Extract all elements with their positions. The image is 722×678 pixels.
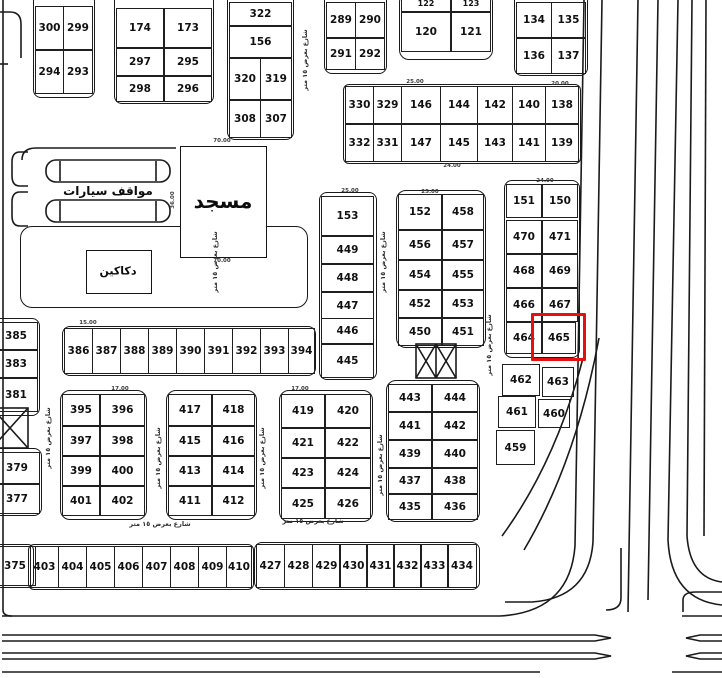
dimension-label: 25.00 — [421, 189, 438, 195]
plot-number: 143 — [484, 137, 506, 149]
plot-138: 138 — [545, 86, 579, 124]
plot-143: 143 — [477, 124, 513, 162]
plot-number: 468 — [513, 265, 535, 277]
plot-number: 295 — [177, 56, 199, 68]
west-road — [3, 0, 12, 616]
plot-number: 397 — [70, 435, 92, 447]
plot-462: 462 — [502, 364, 540, 396]
plot-number: 406 — [118, 561, 140, 573]
plot-136: 136 — [516, 38, 552, 74]
plot-294: 294 — [35, 50, 64, 94]
plot-152: 152 — [398, 194, 442, 230]
plot-419: 419 — [281, 394, 325, 428]
plot-number: 173 — [177, 22, 199, 34]
plot-number: 409 — [202, 561, 224, 573]
plot-397: 397 — [62, 426, 100, 456]
plot-number: 430 — [343, 560, 365, 572]
highway-line — [668, 0, 678, 540]
plot-number: 297 — [129, 56, 151, 68]
plot-135: 135 — [551, 2, 586, 38]
plot-number: 471 — [549, 231, 571, 243]
intersection-arc — [500, 546, 575, 616]
plot-173: 173 — [164, 8, 212, 48]
plot-457: 457 — [442, 230, 484, 260]
plot-number: 392 — [236, 345, 258, 357]
plot-416: 416 — [212, 426, 255, 456]
plot-449: 449 — [321, 236, 374, 264]
plot-430: 430 — [339, 544, 368, 588]
plot-number: 437 — [399, 475, 421, 487]
plot-331: 331 — [373, 124, 402, 162]
street-label: شارع بعرض ١٥ متر — [376, 434, 384, 495]
plot-number: 452 — [409, 298, 431, 310]
plot-number: 399 — [70, 465, 92, 477]
plot-289: 289 — [326, 2, 356, 38]
plot-403: 403 — [30, 546, 59, 588]
parking-row — [46, 160, 170, 182]
plot-436: 436 — [432, 494, 478, 520]
plot-number: 298 — [129, 83, 151, 95]
plot-number: 140 — [518, 99, 540, 111]
plot-number: 396 — [112, 404, 134, 416]
plot-number: 150 — [549, 195, 571, 207]
plot-number: 450 — [409, 326, 431, 338]
plot-number: 449 — [337, 244, 359, 256]
plot-134: 134 — [516, 2, 552, 38]
plot-420: 420 — [325, 394, 371, 428]
plot-293: 293 — [63, 50, 93, 94]
plot-308: 308 — [229, 100, 261, 138]
plot-431: 431 — [366, 544, 395, 588]
plot-468: 468 — [506, 254, 542, 288]
plot-424: 424 — [325, 458, 371, 488]
plot-number: 290 — [359, 14, 381, 26]
plot-174: 174 — [116, 8, 164, 48]
utility-block-hatched — [416, 344, 456, 378]
plot-number: 403 — [34, 561, 56, 573]
plot-number: 139 — [551, 137, 573, 149]
plot-number: 408 — [174, 561, 196, 573]
plot-433: 433 — [420, 544, 449, 588]
plot-number: 401 — [70, 495, 92, 507]
parking-row — [46, 200, 170, 222]
plot-437: 437 — [388, 468, 432, 494]
plot-number: 174 — [129, 22, 151, 34]
plot-392: 392 — [232, 328, 261, 374]
plot-number: 424 — [337, 467, 359, 479]
plot-number: 320 — [234, 73, 256, 85]
plot-156: 156 — [229, 26, 292, 58]
plot-391: 391 — [204, 328, 233, 374]
plot-387: 387 — [92, 328, 121, 374]
plot-number: 381 — [5, 389, 27, 401]
plot-153: 153 — [321, 196, 374, 236]
plot-number: 446 — [337, 325, 359, 337]
plot-number: 432 — [397, 560, 419, 572]
plot-443: 443 — [388, 384, 432, 412]
plot-290: 290 — [355, 2, 385, 38]
label-car-parking: مواقف سيارات — [63, 184, 153, 198]
plot-291: 291 — [326, 38, 356, 70]
plot-137: 137 — [551, 38, 586, 74]
plot-332: 332 — [345, 124, 374, 162]
plot-448: 448 — [321, 264, 374, 292]
plot-number: 458 — [452, 206, 474, 218]
plot-number: 463 — [547, 376, 569, 388]
street-label: شارع بعرض ١٥ متر — [129, 520, 190, 528]
plot-144: 144 — [440, 86, 478, 124]
plot-number: 385 — [5, 330, 27, 342]
plot-number: 138 — [551, 99, 573, 111]
plot-number: 427 — [260, 560, 282, 572]
dimension-label: 17.00 — [291, 386, 308, 392]
dimension-label: 70.00 — [213, 258, 230, 264]
plot-414: 414 — [212, 456, 255, 486]
plot-number: 137 — [558, 50, 580, 62]
plot-440: 440 — [432, 440, 478, 468]
plot-432: 432 — [393, 544, 422, 588]
street-label: شارع بعرض ١٥ متر — [258, 427, 266, 488]
plot-393: 393 — [260, 328, 289, 374]
plot-number: 293 — [67, 66, 89, 78]
plot-number: 141 — [518, 137, 540, 149]
intersection-arc — [505, 542, 593, 602]
plot-number: 438 — [444, 475, 466, 487]
plot-120: 120 — [401, 12, 451, 52]
plot-410: 410 — [226, 546, 252, 588]
plot-number: 429 — [316, 560, 338, 572]
plot-146: 146 — [401, 86, 441, 124]
south-median — [686, 635, 722, 641]
plot-number: 433 — [424, 560, 446, 572]
plot-number: 394 — [291, 345, 313, 357]
plot-385: 385 — [0, 322, 38, 350]
plot-428: 428 — [284, 544, 313, 588]
plot-number: 421 — [292, 437, 314, 449]
plot-number: 426 — [337, 498, 359, 510]
plot-number: 300 — [39, 22, 61, 34]
plot-330: 330 — [345, 86, 374, 124]
plot-number: 402 — [112, 495, 134, 507]
street-label: شارع بعرض ١٥ متر — [154, 427, 162, 488]
plot-number: 135 — [558, 14, 580, 26]
plot-number: 454 — [409, 269, 431, 281]
highlight-plot-465 — [531, 313, 586, 361]
plot-number: 428 — [288, 560, 310, 572]
plot-number: 144 — [448, 99, 470, 111]
plot-number: 156 — [250, 36, 272, 48]
plot-number: 134 — [523, 14, 545, 26]
plot-number: 153 — [337, 210, 359, 222]
plot-number: 147 — [410, 137, 432, 149]
plot-307: 307 — [260, 100, 292, 138]
plot-454: 454 — [398, 260, 442, 290]
dimension-label: 24.00 — [536, 178, 553, 184]
dimension-label: 17.00 — [111, 386, 128, 392]
plot-435: 435 — [388, 494, 432, 520]
plot-number: 469 — [549, 265, 571, 277]
plot-460: 460 — [538, 399, 570, 428]
plot-number: 435 — [399, 501, 421, 513]
plot-298: 298 — [116, 76, 164, 102]
highway-line — [704, 0, 706, 536]
plot-number: 442 — [444, 420, 466, 432]
plot-number: 455 — [452, 269, 474, 281]
plot-number: 436 — [444, 501, 466, 513]
plot-426: 426 — [325, 488, 371, 519]
plot-299: 299 — [63, 6, 93, 50]
plot-150: 150 — [542, 184, 578, 218]
plot-number: 299 — [67, 22, 89, 34]
plot-number: 383 — [5, 358, 27, 370]
plot-444: 444 — [432, 384, 478, 412]
plot-number: 390 — [180, 345, 202, 357]
intersection-corner — [683, 592, 722, 612]
plot-386: 386 — [64, 328, 93, 374]
plot-297: 297 — [116, 48, 164, 76]
dimension-label: 36.00 — [170, 191, 176, 208]
plot-number: 121 — [460, 26, 482, 38]
plot-408: 408 — [170, 546, 199, 588]
street-label: شارع بعرض ١٥ متر — [282, 517, 343, 525]
plot-number: 444 — [444, 392, 466, 404]
plot-400: 400 — [100, 456, 145, 486]
plot-421: 421 — [281, 428, 325, 458]
plot-442: 442 — [432, 412, 478, 440]
dimension-label: 25.00 — [341, 188, 358, 194]
plot-439: 439 — [388, 440, 432, 468]
label-shops: دكاكين — [100, 265, 137, 278]
plot-number: 322 — [250, 8, 272, 20]
plot-number: 386 — [68, 345, 90, 357]
plot-121: 121 — [451, 12, 491, 52]
dimension-label: 25.00 — [406, 79, 423, 85]
plot-388: 388 — [120, 328, 149, 374]
plot-number: 294 — [39, 66, 61, 78]
plot-471: 471 — [542, 220, 578, 254]
highway-line — [628, 0, 638, 612]
plot-number: 389 — [152, 345, 174, 357]
plot-422: 422 — [325, 428, 371, 458]
plot-404: 404 — [58, 546, 87, 588]
plot-number: 440 — [444, 448, 466, 460]
plot-145: 145 — [440, 124, 478, 162]
plot-395: 395 — [62, 394, 100, 426]
plot-141: 141 — [512, 124, 546, 162]
plot-number: 136 — [523, 50, 545, 62]
plot-number: 434 — [451, 560, 473, 572]
plot-number: 419 — [292, 405, 314, 417]
plot-455: 455 — [442, 260, 484, 290]
plot-number: 439 — [399, 448, 421, 460]
plot-number: 388 — [124, 345, 146, 357]
plot-number: 391 — [208, 345, 230, 357]
plot-446: 446 — [321, 318, 374, 344]
plot-390: 390 — [176, 328, 205, 374]
south-median — [2, 653, 611, 659]
plot-445: 445 — [321, 344, 374, 378]
plot-number: 291 — [330, 48, 352, 60]
parking-end-cap — [12, 152, 28, 186]
plot-number: 146 — [410, 99, 432, 111]
plot-number: 122 — [418, 0, 435, 8]
plot-405: 405 — [86, 546, 115, 588]
plot-number: 423 — [292, 467, 314, 479]
plot-number: 289 — [330, 14, 352, 26]
plot-number: 416 — [223, 435, 245, 447]
highway-line — [648, 0, 658, 600]
plot-381: 381 — [0, 378, 38, 412]
plot-number: 145 — [448, 137, 470, 149]
plot-438: 438 — [432, 468, 478, 494]
plot-number: 308 — [234, 113, 256, 125]
plot-number: 418 — [223, 404, 245, 416]
plot-319: 319 — [260, 58, 292, 100]
plot-320: 320 — [229, 58, 261, 100]
plot-407: 407 — [142, 546, 171, 588]
plot-417: 417 — [168, 394, 212, 426]
plot-number: 461 — [506, 406, 528, 418]
plot-number: 443 — [399, 392, 421, 404]
plot-number: 462 — [510, 374, 532, 386]
plot-number: 329 — [377, 99, 399, 111]
plot-number: 415 — [179, 435, 201, 447]
plot-377: 377 — [0, 484, 40, 514]
plot-399: 399 — [62, 456, 100, 486]
plot-number: 400 — [112, 465, 134, 477]
street-label: شارع بعرض ١٥ متر — [379, 231, 387, 292]
plot-number: 319 — [265, 73, 287, 85]
plot-number: 447 — [337, 300, 359, 312]
plot-number: 412 — [223, 495, 245, 507]
plot-number: 445 — [337, 355, 359, 367]
plot-number: 407 — [146, 561, 168, 573]
plot-398: 398 — [100, 426, 145, 456]
plot-142: 142 — [477, 86, 513, 124]
plot-number: 387 — [96, 345, 118, 357]
plot-415: 415 — [168, 426, 212, 456]
plot-296: 296 — [164, 76, 212, 102]
plot-409: 409 — [198, 546, 227, 588]
street-label: شارع بعرض ١٥ متر — [301, 29, 309, 90]
dimension-label: 70.00 — [213, 138, 230, 144]
street-label: شارع بعرض ١٥ متر — [44, 407, 52, 468]
plot-number: 422 — [337, 437, 359, 449]
plot-458: 458 — [442, 194, 484, 230]
dimension-label: 20.00 — [551, 81, 568, 87]
plot-396: 396 — [100, 394, 145, 426]
plot-139: 139 — [545, 124, 579, 162]
plot-number: 375 — [4, 560, 26, 572]
highway-line — [593, 0, 602, 542]
plot-number: 404 — [62, 561, 84, 573]
plot-402: 402 — [100, 486, 145, 516]
plot-number: 379 — [6, 462, 28, 474]
plot-number: 448 — [337, 272, 359, 284]
plot-number: 292 — [359, 48, 381, 60]
plot-379: 379 — [0, 452, 40, 484]
plot-122: 122 — [401, 0, 451, 12]
plot-number: 120 — [415, 26, 437, 38]
plot-number: 453 — [452, 298, 474, 310]
plot-389: 389 — [148, 328, 177, 374]
plot-number: 330 — [349, 99, 371, 111]
plot-number: 411 — [179, 495, 201, 507]
plot-451: 451 — [442, 318, 484, 346]
plot-number: 332 — [349, 137, 371, 149]
parking-area-edge — [22, 148, 176, 160]
intersection-arc — [668, 540, 722, 605]
plot-number: 410 — [228, 561, 250, 573]
plot-447: 447 — [321, 292, 374, 319]
plot-469: 469 — [542, 254, 578, 288]
plot-number: 460 — [543, 408, 565, 420]
plot-number: 377 — [6, 493, 28, 505]
plot-295: 295 — [164, 48, 212, 76]
intersection-arc — [687, 536, 722, 582]
plot-453: 453 — [442, 290, 484, 318]
plot-number: 425 — [292, 498, 314, 510]
plot-number: 467 — [549, 299, 571, 311]
dimension-label: 24.00 — [443, 163, 460, 169]
dimension-label: 15.00 — [79, 320, 96, 326]
plot-number: 123 — [463, 0, 480, 8]
plot-292: 292 — [355, 38, 385, 70]
plot-427: 427 — [256, 544, 285, 588]
plot-300: 300 — [35, 6, 64, 50]
plot-459: 459 — [496, 430, 535, 465]
plot-number: 142 — [484, 99, 506, 111]
plot-number: 307 — [265, 113, 287, 125]
plot-number: 413 — [179, 465, 201, 477]
plot-406: 406 — [114, 546, 143, 588]
south-median — [686, 653, 722, 659]
plot-number: 331 — [377, 137, 399, 149]
plot-number: 456 — [409, 239, 431, 251]
plot-434: 434 — [447, 544, 477, 588]
plot-number: 395 — [70, 404, 92, 416]
plot-452: 452 — [398, 290, 442, 318]
plot-number: 296 — [177, 83, 199, 95]
plot-418: 418 — [212, 394, 255, 426]
plot-383: 383 — [0, 350, 38, 378]
south-median — [2, 635, 611, 641]
plot-number: 466 — [513, 299, 535, 311]
highway-line — [687, 0, 692, 536]
label-mosque: مسجد — [194, 189, 253, 213]
street-label: شارع بعرض ١٥ متر — [485, 314, 493, 375]
plot-470: 470 — [506, 220, 542, 254]
plot-394: 394 — [288, 328, 315, 374]
plot-number: 457 — [452, 239, 474, 251]
intersection-corner — [606, 548, 621, 610]
plot-322: 322 — [229, 2, 292, 26]
plot-147: 147 — [401, 124, 441, 162]
plot-number: 417 — [179, 404, 201, 416]
plot-number: 431 — [370, 560, 392, 572]
plot-461: 461 — [498, 396, 536, 428]
plot-456: 456 — [398, 230, 442, 260]
plot-number: 152 — [409, 206, 431, 218]
plot-123: 123 — [451, 0, 491, 12]
plot-number: 470 — [513, 231, 535, 243]
plot-441: 441 — [388, 412, 432, 440]
plot-429: 429 — [312, 544, 341, 588]
plot-401: 401 — [62, 486, 100, 516]
plot-450: 450 — [398, 318, 442, 346]
plot-number: 441 — [399, 420, 421, 432]
plot-number: 420 — [337, 405, 359, 417]
